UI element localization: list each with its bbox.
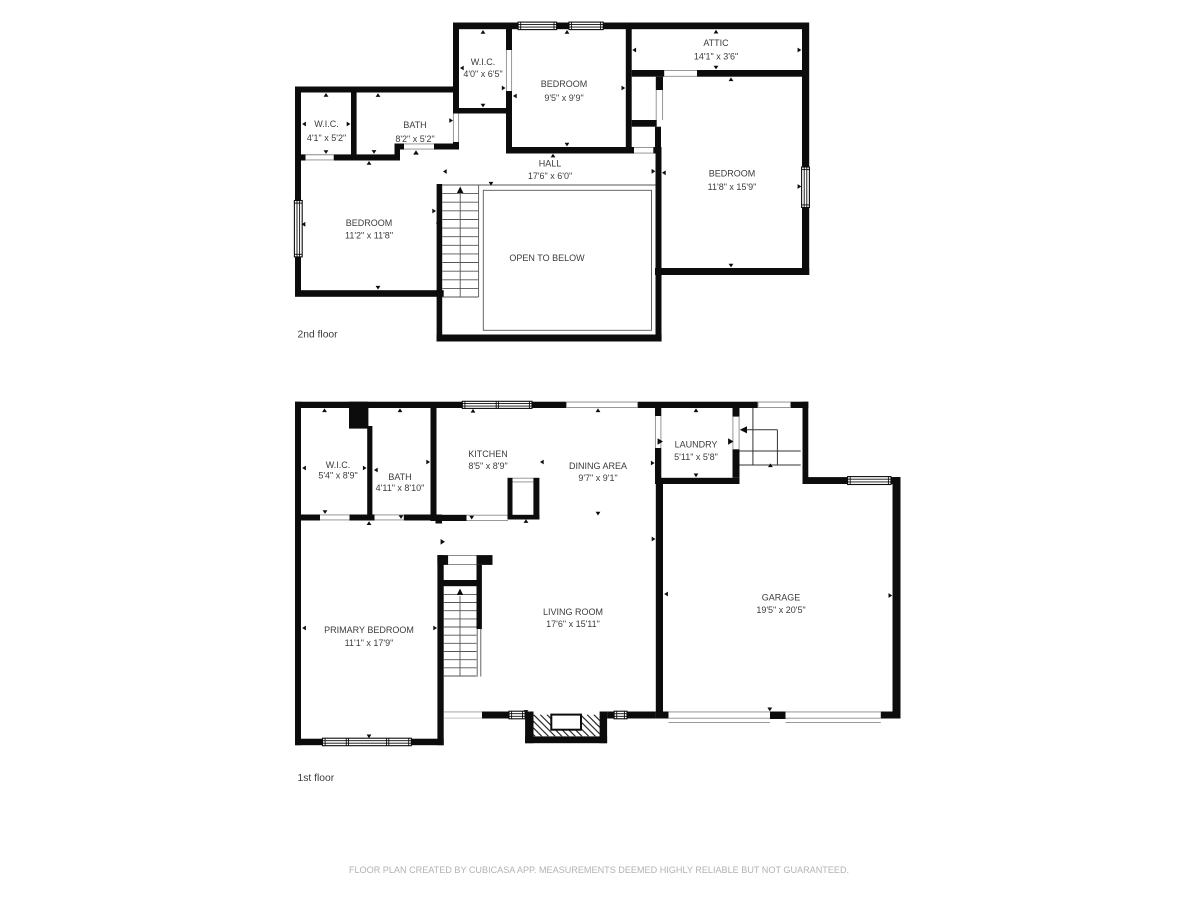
svg-text:W.I.C.: W.I.C. <box>326 460 351 470</box>
svg-text:OPEN TO BELOW: OPEN TO BELOW <box>509 253 585 263</box>
svg-text:9'5" x 9'9": 9'5" x 9'9" <box>544 93 583 103</box>
svg-text:BEDROOM: BEDROOM <box>709 169 756 179</box>
svg-text:17'6" x 15'11": 17'6" x 15'11" <box>546 619 600 629</box>
svg-text:2nd floor: 2nd floor <box>298 329 339 340</box>
svg-text:FLOOR PLAN CREATED BY CUBICASA: FLOOR PLAN CREATED BY CUBICASA APP. MEAS… <box>349 865 849 875</box>
svg-text:4'0" x 6'5": 4'0" x 6'5" <box>463 69 502 79</box>
svg-text:4'1" x 5'2": 4'1" x 5'2" <box>307 133 346 143</box>
svg-text:DINING AREA: DINING AREA <box>569 461 627 471</box>
svg-text:GARAGE: GARAGE <box>762 593 801 603</box>
svg-text:11'2" x 11'8": 11'2" x 11'8" <box>345 231 393 241</box>
svg-text:8'2" x 5'2": 8'2" x 5'2" <box>395 134 434 144</box>
svg-text:4'11" x 8'10": 4'11" x 8'10" <box>376 483 425 493</box>
svg-text:HALL: HALL <box>539 159 562 169</box>
svg-text:ATTIC: ATTIC <box>703 38 729 48</box>
svg-text:9'7" x 9'1": 9'7" x 9'1" <box>578 473 617 483</box>
svg-text:W.I.C.: W.I.C. <box>314 119 339 129</box>
svg-text:LAUNDRY: LAUNDRY <box>675 440 718 450</box>
svg-text:17'6" x 6'0": 17'6" x 6'0" <box>528 171 572 181</box>
svg-text:8'5" x 8'9": 8'5" x 8'9" <box>468 461 507 471</box>
svg-text:11'8" x 15'9": 11'8" x 15'9" <box>708 182 757 192</box>
svg-text:LIVING ROOM: LIVING ROOM <box>543 607 603 617</box>
svg-text:5'11" x 5'8": 5'11" x 5'8" <box>674 452 718 462</box>
svg-text:5'4" x 8'9": 5'4" x 8'9" <box>318 471 357 481</box>
svg-text:BATH: BATH <box>388 472 411 482</box>
svg-text:W.I.C.: W.I.C. <box>471 57 496 67</box>
svg-text:11'1" x 17'9": 11'1" x 17'9" <box>345 638 394 648</box>
svg-text:BEDROOM: BEDROOM <box>541 79 588 89</box>
svg-text:14'1" x 3'6": 14'1" x 3'6" <box>694 52 738 62</box>
svg-text:PRIMARY BEDROOM: PRIMARY BEDROOM <box>324 625 414 635</box>
svg-text:1st floor: 1st floor <box>298 773 335 784</box>
svg-text:19'5" x 20'5": 19'5" x 20'5" <box>756 605 805 615</box>
svg-text:KITCHEN: KITCHEN <box>468 449 508 459</box>
svg-text:BEDROOM: BEDROOM <box>346 218 393 228</box>
svg-text:BATH: BATH <box>403 120 426 130</box>
